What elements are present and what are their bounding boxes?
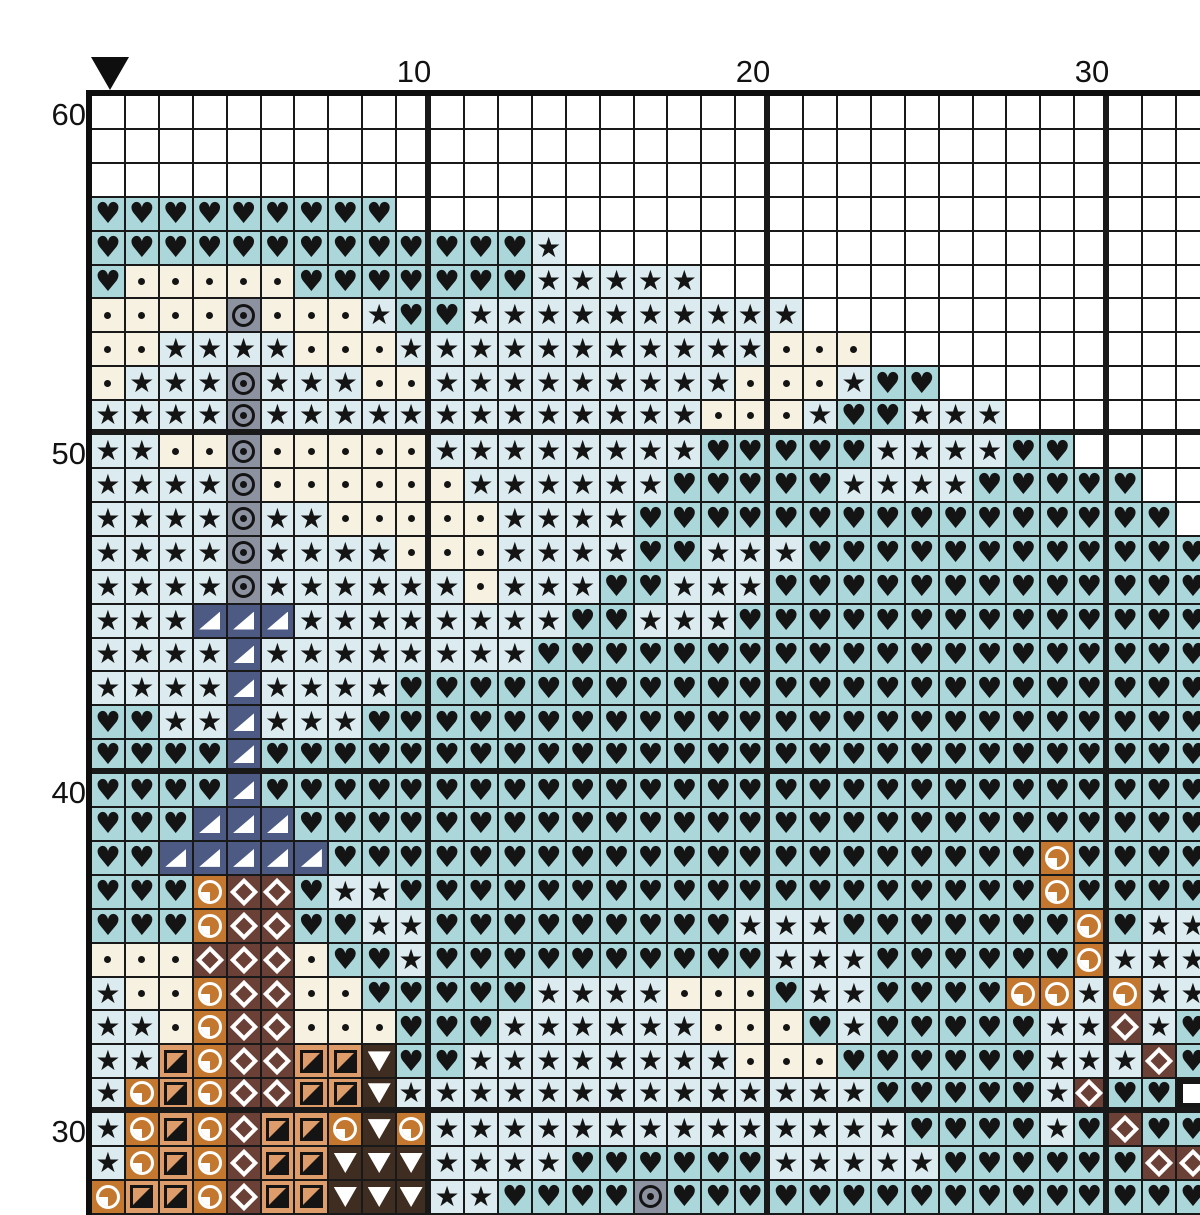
grid-cell-empty (736, 266, 770, 300)
black-star-icon (672, 573, 697, 601)
grid-cell-white-lower-right-triangle (262, 605, 296, 639)
grid-cell-black-heart (567, 944, 601, 978)
grid-cell-white-quarter-circle (1041, 842, 1075, 876)
grid-cell-empty (1177, 333, 1200, 367)
black-heart-icon (807, 470, 833, 499)
grid-cell-empty (940, 367, 974, 401)
black-star-icon (95, 437, 120, 465)
black-star-icon (95, 1115, 120, 1143)
black-star-icon (706, 335, 731, 363)
grid-cell-black-half-square (295, 1045, 329, 1079)
grid-cell-empty (668, 130, 702, 164)
grid-cell-black-star (533, 1147, 567, 1181)
grid-cell-black-heart (872, 1079, 906, 1113)
black-heart-icon (773, 979, 799, 1008)
grid-cell-black-heart (668, 1181, 702, 1215)
black-heart-icon (398, 877, 424, 906)
black-half-square-icon (266, 1185, 289, 1208)
grid-cell-black-star (160, 639, 194, 673)
grid-cell-black-heart (736, 639, 770, 673)
white-diamond-outline-icon (196, 945, 224, 973)
grid-cell-black-heart (1041, 435, 1075, 469)
white-diamond-outline-icon (1075, 1079, 1103, 1107)
grid-cell-black-half-square (126, 1181, 160, 1215)
black-star-icon (367, 301, 392, 329)
grid-cell-black-star (1041, 1045, 1075, 1079)
black-star-icon (1045, 1115, 1070, 1143)
black-star-icon (299, 640, 324, 668)
grid-cell-black-star (635, 1045, 669, 1079)
black-star-icon (299, 539, 324, 567)
white-quarter-circle-icon (1077, 948, 1101, 972)
white-lower-right-triangle-icon (233, 645, 254, 663)
black-heart-icon (1044, 740, 1070, 768)
grid-cell-empty (1075, 435, 1109, 469)
grid-cell-black-heart (431, 978, 465, 1012)
black-dot-icon (104, 312, 111, 319)
black-star-icon (367, 674, 392, 702)
black-heart-icon (773, 674, 799, 703)
grid-cell-black-heart (1007, 1147, 1041, 1181)
black-star-icon (638, 980, 663, 1008)
black-heart-icon (95, 199, 121, 228)
grid-cell-black-star (397, 605, 431, 639)
black-dot-icon (172, 448, 179, 455)
white-quarter-circle-icon (1113, 982, 1137, 1006)
grid-cell-white-diamond-outline (1177, 1147, 1200, 1181)
black-heart-icon (875, 945, 901, 974)
grid-cell-black-heart (397, 299, 431, 333)
black-star-icon (333, 607, 358, 635)
grid-cell-black-star (499, 299, 533, 333)
black-star-icon (672, 401, 697, 429)
black-heart-icon (909, 1079, 935, 1107)
grid-cell-black-heart (1177, 605, 1200, 639)
grid-cell-empty (872, 164, 906, 198)
grid-cell-white-quarter-circle (194, 910, 228, 944)
grid-cell-empty (1143, 367, 1177, 401)
black-heart-icon (1010, 877, 1036, 906)
grid-cell-black-star (397, 571, 431, 605)
black-heart-icon (671, 776, 697, 805)
grid-cell-black-heart (567, 605, 601, 639)
grid-cell-empty (262, 164, 296, 198)
black-dot-icon (206, 448, 213, 455)
black-heart-icon (366, 233, 392, 262)
grid-cell-black-heart (397, 232, 431, 266)
grid-cell-empty (872, 96, 906, 130)
black-star-icon (638, 267, 663, 295)
grid-cell-black-star (397, 333, 431, 367)
grid-cell-black-star (668, 435, 702, 469)
black-heart-icon (909, 843, 935, 872)
grid-cell-black-star (363, 639, 397, 673)
black-heart-icon (1076, 1149, 1102, 1178)
grid-cell-black-heart (194, 232, 228, 266)
black-heart-icon (163, 740, 189, 768)
grid-cell-black-star (126, 639, 160, 673)
grid-cell-white-diamond-outline (1143, 1147, 1177, 1181)
grid-cell-black-heart (872, 571, 906, 605)
grid-cell-black-heart (974, 1079, 1008, 1113)
grid-cell-white-down-triangle (397, 1147, 431, 1181)
black-heart-icon (1010, 504, 1036, 533)
grid-cell-black-dot (295, 978, 329, 1012)
black-dot-icon (444, 549, 451, 556)
grid-cell-black-heart (1109, 910, 1143, 944)
black-half-square-icon (164, 1082, 187, 1105)
grid-cell-black-dot (194, 435, 228, 469)
black-dot-icon (274, 312, 281, 319)
grid-cell-black-star (668, 333, 702, 367)
black-star-icon (536, 267, 561, 295)
grid-cell-white-diamond-outline (228, 876, 262, 910)
grid-cell-black-heart (567, 774, 601, 808)
grid-cell-black-heart (363, 232, 397, 266)
grid-cell-empty (1007, 232, 1041, 266)
black-heart-icon (841, 708, 867, 737)
black-heart-icon (502, 843, 528, 872)
black-heart-icon (1112, 877, 1138, 906)
grid-cell-black-heart (668, 740, 702, 774)
black-heart-icon (807, 740, 833, 768)
black-dot-icon (477, 549, 484, 556)
black-heart-icon (909, 1047, 935, 1076)
black-dot-icon (783, 1058, 790, 1065)
black-heart-icon (1010, 776, 1036, 805)
grid-cell-black-star (906, 401, 940, 435)
black-star-icon (265, 505, 290, 533)
black-star-icon (502, 471, 527, 499)
grid-cell-black-heart (872, 503, 906, 537)
grid-cell-empty (770, 232, 804, 266)
grid-cell-black-heart (1109, 1079, 1143, 1113)
grid-cell-black-star (397, 401, 431, 435)
black-star-icon (1180, 912, 1200, 940)
grid-cell-black-star (126, 1011, 160, 1045)
grid-cell-empty (194, 130, 228, 164)
black-star-icon (163, 401, 188, 429)
grid-cell-black-heart (567, 639, 601, 673)
grid-cell-white-quarter-circle (194, 978, 228, 1012)
grid-cell-empty (363, 96, 397, 130)
black-heart-icon (298, 877, 324, 906)
grid-cell-black-half-square (160, 1079, 194, 1113)
grid-cell-black-heart (940, 537, 974, 571)
grid-cell-black-heart (465, 672, 499, 706)
grid-cell-black-heart (363, 808, 397, 842)
grid-cell-black-star (567, 1113, 601, 1147)
grid-cell-black-heart (702, 910, 736, 944)
grid-cell-empty (160, 130, 194, 164)
grid-cell-black-dot (770, 333, 804, 367)
grid-cell-black-star (465, 1079, 499, 1113)
grid-cell-empty (635, 232, 669, 266)
black-dot-icon (308, 312, 315, 319)
grid-cell-black-star (906, 469, 940, 503)
grid-cell-black-star (329, 537, 363, 571)
grid-cell-black-heart (431, 299, 465, 333)
black-heart-icon (1044, 572, 1070, 601)
grid-cell-empty (1007, 401, 1041, 435)
black-half-square-icon (300, 1185, 323, 1208)
grid-cell-black-heart (668, 910, 702, 944)
black-dot-icon (206, 278, 213, 285)
grid-cell-black-star (906, 435, 940, 469)
black-heart-icon (1112, 1079, 1138, 1107)
grid-cell-black-star (601, 299, 635, 333)
grid-cell-black-star (295, 706, 329, 740)
grid-cell-empty (499, 198, 533, 232)
grid-cell-black-star (702, 605, 736, 639)
grid-cell-black-heart (770, 605, 804, 639)
grid-cell-black-heart (906, 1113, 940, 1147)
black-heart-icon (95, 233, 121, 262)
grid-cell-empty (1109, 164, 1143, 198)
black-heart-icon (1076, 1182, 1102, 1211)
grid-cell-black-heart (363, 944, 397, 978)
black-star-icon (163, 640, 188, 668)
grid-cell-black-star (804, 978, 838, 1012)
black-heart-icon (95, 708, 121, 737)
column-label-30: 30 (1052, 56, 1132, 87)
grid-cell-black-star (601, 1011, 635, 1045)
grid-cell-black-heart (262, 198, 296, 232)
black-heart-icon (1044, 776, 1070, 805)
grid-cell-white-diamond-outline (262, 1011, 296, 1045)
grid-cell-black-star (838, 469, 872, 503)
black-heart-icon (1180, 606, 1200, 635)
black-heart-icon (536, 911, 562, 940)
grid-cell-black-star (499, 503, 533, 537)
black-heart-icon (1010, 1149, 1036, 1178)
black-heart-icon (536, 640, 562, 669)
black-heart-icon (1076, 470, 1102, 499)
white-lower-right-triangle-icon (233, 745, 254, 763)
grid-cell-black-star (465, 299, 499, 333)
grid-cell-empty (601, 198, 635, 232)
grid-cell-empty (635, 96, 669, 130)
grid-cell-black-dot (838, 333, 872, 367)
white-diamond-outline-icon (229, 1079, 257, 1107)
grid-cell-black-heart (397, 1011, 431, 1045)
grid-cell-empty (668, 198, 702, 232)
black-heart-icon (1180, 843, 1200, 872)
grid-cell-empty (872, 198, 906, 232)
black-heart-icon (264, 740, 290, 768)
grid-cell-black-heart (397, 706, 431, 740)
black-heart-icon (468, 979, 494, 1008)
white-quarter-circle-icon (198, 1015, 222, 1039)
black-heart-icon (1076, 843, 1102, 872)
grid-cell-black-dot (668, 978, 702, 1012)
grid-cell-white-lower-right-triangle (228, 808, 262, 842)
grid-cell-black-heart (770, 842, 804, 876)
black-heart-icon (434, 233, 460, 262)
black-heart-icon (943, 1013, 969, 1042)
black-star-icon (434, 437, 459, 465)
grid-cell-black-heart (1041, 571, 1075, 605)
grid-cell-black-dot (295, 333, 329, 367)
black-star-icon (399, 401, 424, 429)
black-heart-icon (875, 674, 901, 703)
grid-cell-black-star (499, 571, 533, 605)
black-dot-icon (747, 990, 754, 997)
grid-cell-empty (1109, 367, 1143, 401)
black-dot-icon (444, 481, 451, 488)
black-star-icon (706, 539, 731, 567)
grid-cell-black-dot (804, 367, 838, 401)
grid-cell-black-star (567, 333, 601, 367)
grid-cell-black-heart (1041, 808, 1075, 842)
grid-cell-empty (974, 367, 1008, 401)
grid-cell-white-down-triangle (329, 1147, 363, 1181)
grid-cell-black-heart (804, 1181, 838, 1215)
black-heart-icon (705, 674, 731, 703)
grid-cell-black-heart (329, 944, 363, 978)
black-heart-icon (468, 843, 494, 872)
grid-cell-black-star (601, 1113, 635, 1147)
grid-cell-black-heart (228, 198, 262, 232)
grid-cell-empty (770, 164, 804, 198)
black-heart-icon (434, 945, 460, 974)
black-star-icon (774, 539, 799, 567)
grid-cell-black-heart (1109, 672, 1143, 706)
grid-cell-black-star (635, 1113, 669, 1147)
grid-cell-black-star (601, 978, 635, 1012)
grid-cell-white-quarter-circle (1075, 944, 1109, 978)
black-dot-icon (240, 278, 247, 285)
white-quarter-circle-icon (1045, 880, 1069, 904)
grid-cell-empty (1143, 401, 1177, 435)
black-heart-icon (705, 1182, 731, 1211)
black-heart-icon (977, 640, 1003, 669)
grid-cell-black-dot (397, 367, 431, 401)
grid-cell-white-diamond-outline (194, 944, 228, 978)
grid-cell-black-heart (397, 876, 431, 910)
grid-cell-black-heart (1177, 537, 1200, 571)
grid-cell-empty (804, 164, 838, 198)
grid-cell-black-heart (838, 672, 872, 706)
grid-cell-black-star (567, 571, 601, 605)
black-star-icon (468, 401, 493, 429)
grid-cell-empty (1075, 164, 1109, 198)
black-heart-icon (366, 708, 392, 737)
grid-cell-black-heart (601, 706, 635, 740)
grid-cell-black-heart (736, 808, 770, 842)
black-heart-icon (977, 843, 1003, 872)
grid-cell-circled-dot (228, 503, 262, 537)
grid-cell-black-star (567, 1045, 601, 1079)
black-heart-icon (1076, 504, 1102, 533)
grid-cell-black-half-square (160, 1113, 194, 1147)
black-star-icon (909, 401, 934, 429)
grid-cell-white-diamond-outline (1109, 1113, 1143, 1147)
grid-cell-black-heart (1109, 571, 1143, 605)
black-heart-icon (705, 504, 731, 533)
grid-cell-empty (92, 130, 126, 164)
grid-cell-black-heart (872, 978, 906, 1012)
grid-cell-black-heart (601, 1147, 635, 1181)
white-quarter-circle-icon (399, 1117, 423, 1141)
black-heart-icon (129, 199, 155, 228)
cross-stitch-pattern-chart: 10 20 30 60 50 40 30 (0, 0, 1200, 1200)
grid-cell-black-heart (465, 910, 499, 944)
grid-cell-black-heart (668, 1147, 702, 1181)
black-star-icon (502, 505, 527, 533)
black-heart-icon (536, 877, 562, 906)
grid-cell-black-star (126, 401, 160, 435)
black-star-icon (774, 912, 799, 940)
black-heart-icon (909, 945, 935, 974)
grid-cell-black-heart (668, 706, 702, 740)
white-lower-right-triangle-icon (233, 713, 254, 731)
black-heart-icon (737, 470, 763, 499)
black-heart-icon (909, 1013, 935, 1042)
grid-cell-black-dot (160, 266, 194, 300)
white-lower-right-triangle-icon (267, 612, 288, 630)
grid-cell-empty (126, 164, 160, 198)
black-heart-icon (1146, 1115, 1172, 1144)
black-heart-icon (773, 809, 799, 838)
grid-cell-circled-dot (228, 435, 262, 469)
black-star-icon (434, 1115, 459, 1143)
grid-cell-black-heart (804, 503, 838, 537)
grid-cell-black-heart (1007, 706, 1041, 740)
grid-cell-black-heart (1075, 706, 1109, 740)
grid-cell-black-heart (601, 1181, 635, 1215)
black-star-icon (265, 708, 290, 736)
grid-cell-black-heart (736, 1147, 770, 1181)
black-heart-icon (332, 809, 358, 838)
black-half-square-icon (334, 1050, 357, 1073)
black-heart-icon (231, 233, 257, 262)
black-heart-icon (977, 1079, 1003, 1107)
black-heart-icon (502, 708, 528, 737)
grid-cell-empty (906, 232, 940, 266)
grid-cell-black-star (668, 299, 702, 333)
grid-cell-black-heart (838, 537, 872, 571)
black-heart-icon (502, 1182, 528, 1211)
grid-cell-black-heart (635, 740, 669, 774)
grid-cell-black-heart (1075, 740, 1109, 774)
white-down-triangle-icon (368, 1083, 391, 1103)
grid-cell-white-quarter-circle (126, 1113, 160, 1147)
black-heart-icon (502, 233, 528, 262)
grid-cell-black-heart (601, 740, 635, 774)
grid-cell-black-heart (160, 198, 194, 232)
black-heart-icon (434, 809, 460, 838)
grid-cell-black-dot (397, 537, 431, 571)
black-star-icon (738, 573, 763, 601)
grid-cell-black-star (635, 299, 669, 333)
grid-cell-empty (1041, 401, 1075, 435)
black-heart-icon (1112, 708, 1138, 737)
black-star-icon (1077, 1047, 1102, 1075)
black-star-icon (163, 573, 188, 601)
grid-cell-black-star (363, 910, 397, 944)
black-star-icon (536, 980, 561, 1008)
grid-cell-black-heart (397, 672, 431, 706)
black-heart-icon (807, 674, 833, 703)
grid-cell-black-heart (1177, 1181, 1200, 1215)
black-half-square-icon (164, 1185, 187, 1208)
grid-cell-empty (1177, 299, 1200, 333)
grid-cell-circled-dot (228, 367, 262, 401)
grid-cell-black-heart (329, 910, 363, 944)
grid-cell-black-heart (906, 808, 940, 842)
black-heart-icon (977, 776, 1003, 805)
